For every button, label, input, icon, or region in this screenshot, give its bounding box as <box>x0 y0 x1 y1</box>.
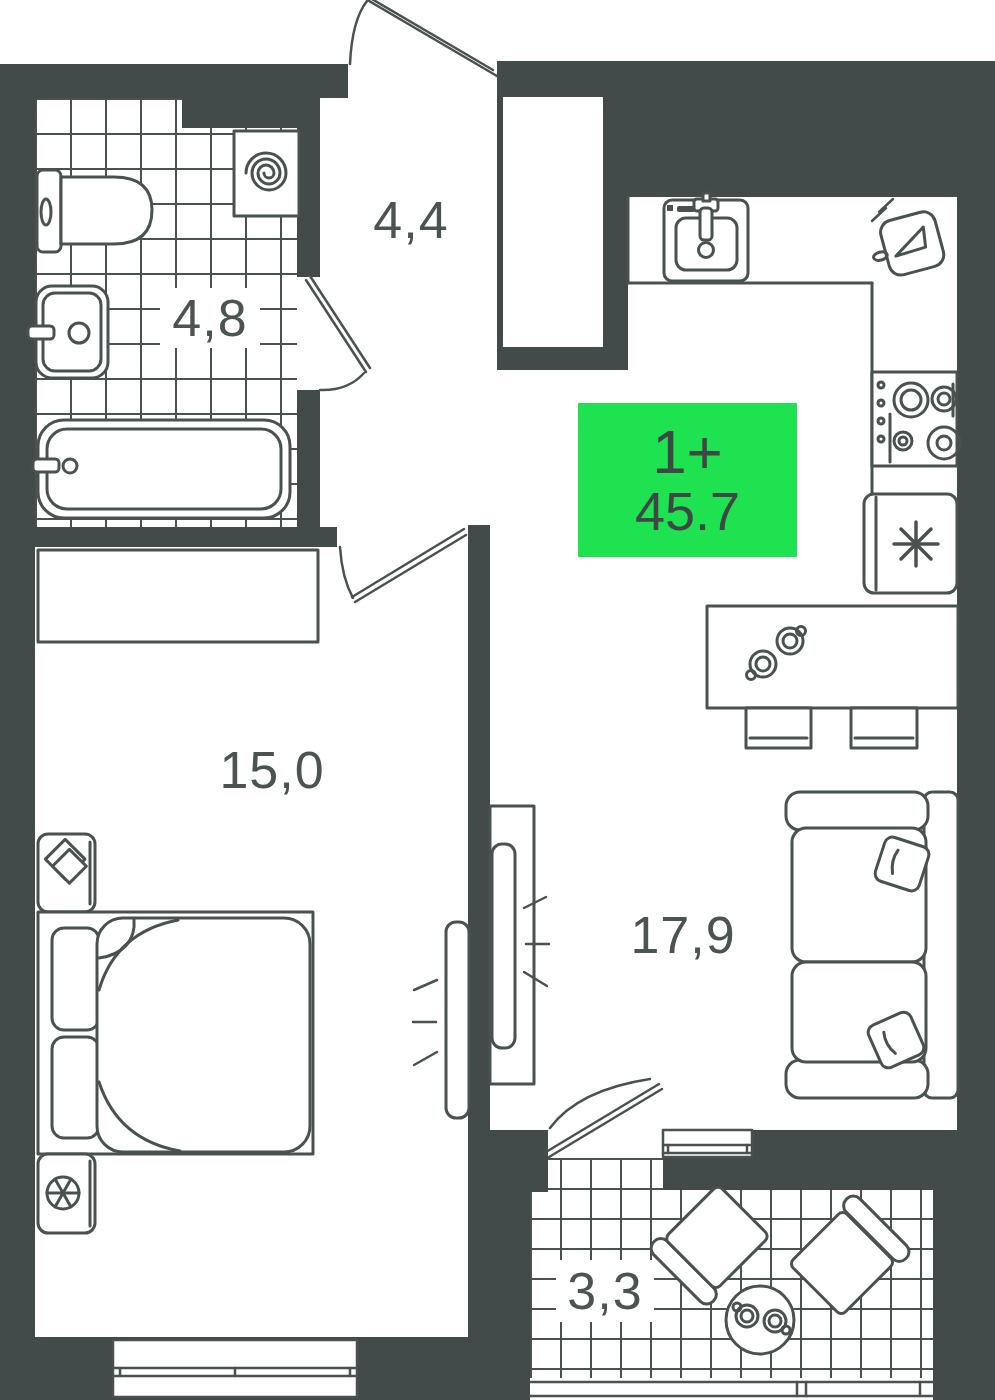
nightstand-top <box>38 834 95 912</box>
pillow <box>866 1010 927 1071</box>
wall-core-shaft <box>497 61 628 370</box>
apartment-area-value: 45.7 <box>635 483 740 540</box>
sofa <box>786 792 958 1098</box>
room-label-bathroom: 4,8 <box>160 288 260 348</box>
nightstand-bottom <box>38 1154 95 1233</box>
cutting-board-icon <box>865 199 946 281</box>
wall-under-living-window <box>663 1158 752 1190</box>
tv-stand <box>490 806 534 1084</box>
cup-icon <box>747 627 806 680</box>
wall-top-left <box>0 64 348 98</box>
wardrobe <box>38 550 318 642</box>
snowflake-icon <box>894 522 938 566</box>
wall-bath-right-upper <box>297 98 320 277</box>
living-window <box>663 1130 752 1157</box>
bedroom-door-swing <box>340 529 466 602</box>
balcony-door-swing <box>546 1079 662 1157</box>
wall-balcony-door-jamb <box>490 1130 548 1192</box>
pillow <box>873 835 931 893</box>
bathroom-door-swing <box>306 276 370 390</box>
wall-bath-right-lower <box>297 390 320 543</box>
wall-balcony-right <box>933 1190 995 1400</box>
blanket <box>97 918 310 1152</box>
apartment-rooms-label: 1+ <box>652 421 723 483</box>
lamp-icon <box>45 839 89 883</box>
room-label-balcony: 3,3 <box>556 1260 654 1322</box>
wall-bottom <box>0 1337 530 1400</box>
tv-bedroom <box>413 922 469 1118</box>
bar-table <box>707 606 958 708</box>
wall-partition-bedroom-living <box>468 525 490 1337</box>
entrance-door-swing <box>350 0 497 76</box>
bed <box>38 912 313 1154</box>
floor-plan: 4,4 4,8 15,0 17,9 3,3 1+ 45.7 <box>0 0 995 1400</box>
fridge <box>864 494 957 593</box>
pillow <box>52 928 99 1030</box>
wall-living-bottom-right <box>752 1130 995 1190</box>
tv-signal-icon <box>524 897 549 986</box>
tv-living <box>490 806 549 1084</box>
stool <box>746 708 917 748</box>
wall-kitchen-top <box>628 61 957 197</box>
wall-right <box>957 61 995 1190</box>
wall-bath-bottom <box>0 527 337 547</box>
room-label-bedroom: 15,0 <box>212 742 332 798</box>
pillow <box>52 1037 99 1138</box>
stove <box>872 372 960 466</box>
apartment-badge: 1+ 45.7 <box>578 403 797 557</box>
wall-left <box>0 64 35 1400</box>
room-label-hallway: 4,4 <box>351 192 471 248</box>
tv-signal-icon <box>413 980 437 1065</box>
kitchen-sink <box>664 193 748 281</box>
plant-icon <box>47 1177 79 1209</box>
room-label-living-kitchen: 17,9 <box>623 907 743 963</box>
